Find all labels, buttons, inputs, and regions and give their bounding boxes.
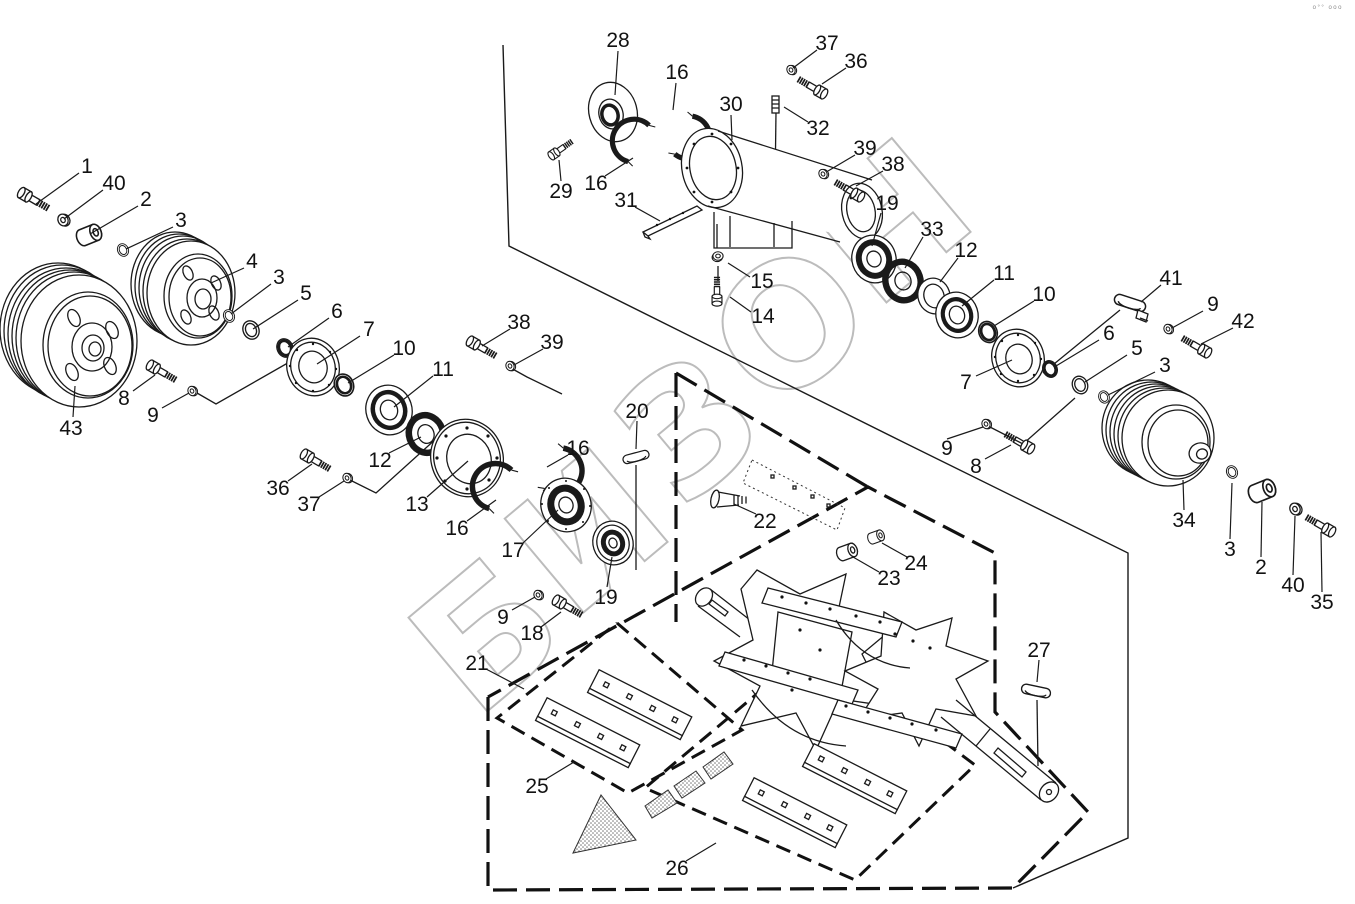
leader-line (793, 50, 817, 68)
part-label-26: 26 (665, 857, 688, 880)
leader-line (253, 300, 298, 329)
part-label-31: 31 (614, 189, 637, 212)
bar-31 (643, 206, 702, 239)
part-label-35: 35 (1310, 591, 1333, 614)
leader-line (1230, 483, 1232, 539)
pulley-43 (0, 263, 137, 407)
leader-line (784, 107, 808, 122)
key-41 (1113, 293, 1148, 322)
part-label-40: 40 (102, 172, 125, 195)
leader-line (1085, 355, 1127, 382)
part-label-22: 22 (753, 510, 776, 533)
leader-line (1293, 516, 1295, 575)
part-label-9: 9 (497, 606, 509, 629)
part-label-2: 2 (140, 188, 152, 211)
part-label-16: 16 (445, 517, 468, 540)
part-label-9: 9 (147, 404, 159, 427)
part-label-1: 1 (81, 155, 93, 178)
part-label-16: 16 (566, 437, 589, 460)
part-label-27: 27 (1027, 639, 1050, 662)
part-label-41: 41 (1159, 267, 1182, 290)
leader-line (1172, 311, 1203, 328)
leader-line (64, 190, 103, 219)
part-label-5: 5 (1131, 337, 1143, 360)
leader-line (822, 68, 846, 84)
leader-line (1056, 340, 1099, 366)
part-label-14: 14 (751, 305, 775, 328)
leader-line (231, 284, 271, 314)
ring-5-left (240, 318, 262, 342)
leader-line (1037, 660, 1039, 682)
stud-32 (772, 96, 779, 113)
screw-29 (547, 138, 575, 161)
washer-9-left (186, 384, 199, 397)
washer-40-right (1288, 501, 1304, 518)
leader-line (348, 355, 394, 383)
part-label-32: 32 (806, 117, 829, 140)
part-label-34: 34 (1172, 509, 1196, 532)
washer-37-left (341, 471, 354, 484)
part-label-11: 11 (993, 262, 1015, 285)
part-label-42: 42 (1231, 310, 1254, 333)
leader-line (635, 207, 660, 221)
leader-line (1201, 328, 1233, 344)
part-label-13: 13 (405, 493, 428, 516)
leader-line (882, 543, 907, 557)
key-27 (1021, 683, 1052, 698)
part-label-2: 2 (1255, 556, 1267, 579)
part-label-15: 15 (750, 270, 773, 293)
part-label-8: 8 (970, 455, 982, 478)
leader-line (559, 160, 561, 181)
corner-mark: о°° ооо (1313, 5, 1343, 11)
part-label-28: 28 (606, 29, 629, 52)
part-label-9: 9 (1207, 293, 1219, 316)
part-label-36: 36 (266, 477, 289, 500)
part-label-8: 8 (118, 387, 130, 410)
leader-line (1321, 532, 1322, 592)
part-label-6: 6 (331, 300, 343, 323)
part-label-37: 37 (815, 32, 838, 55)
pulley-34 (1102, 380, 1214, 486)
part-label-20: 20 (625, 400, 648, 423)
leader-line (1141, 285, 1161, 302)
leader-line (686, 843, 716, 861)
part-label-3: 3 (1224, 538, 1236, 561)
part-label-10: 10 (1032, 283, 1055, 306)
part-label-7: 7 (363, 318, 375, 341)
part-label-30: 30 (719, 93, 742, 116)
part-label-21: 21 (465, 652, 488, 675)
connector-line (197, 356, 300, 404)
part-label-36: 36 (844, 50, 867, 73)
part-label-9: 9 (941, 437, 953, 460)
part-label-33: 33 (920, 218, 943, 241)
leader-line (288, 464, 312, 481)
ring-3-a (115, 242, 130, 258)
bolt-38-left (465, 335, 498, 360)
part-label-12: 12 (954, 239, 977, 262)
part-label-37: 37 (297, 493, 320, 516)
leader-line (482, 329, 510, 346)
part-label-17: 17 (501, 539, 524, 562)
part-label-38: 38 (881, 153, 904, 176)
part-label-40: 40 (1281, 574, 1304, 597)
part-label-3: 3 (1159, 354, 1171, 377)
part-label-3: 3 (175, 209, 187, 232)
part-label-19: 19 (875, 192, 898, 215)
part-label-39: 39 (853, 137, 876, 160)
ring-3-far-right (1224, 464, 1239, 480)
leader-line (985, 445, 1011, 459)
washer-15 (712, 252, 723, 262)
leader-line (514, 349, 543, 365)
bolt-1 (16, 186, 51, 213)
leader-line (673, 83, 676, 110)
part-label-29: 29 (549, 180, 572, 203)
parts-catalog-page: { "meta": { "background": "#ffffff", "li… (0, 0, 1355, 904)
washer-9-right-top (1162, 322, 1175, 335)
leader-line (994, 301, 1034, 326)
part-label-24: 24 (904, 552, 928, 575)
leader-line (90, 206, 138, 234)
direction-arrow (573, 752, 733, 853)
knife-plate-26-a (803, 744, 907, 814)
leader-line (605, 158, 633, 176)
leader-line (36, 173, 79, 204)
part-label-25: 25 (525, 775, 548, 798)
part-label-38: 38 (507, 311, 530, 334)
part-label-12: 12 (368, 449, 391, 472)
nut-24 (866, 529, 886, 545)
bushing-2-right (1246, 477, 1278, 504)
leader-line (1183, 480, 1184, 510)
part-label-39: 39 (540, 331, 563, 354)
part-label-18: 18 (520, 622, 543, 645)
washer-9-right-mid (980, 417, 993, 430)
part-label-16: 16 (584, 172, 607, 195)
pulley-4 (131, 232, 235, 345)
leader-line (319, 481, 344, 497)
part-label-43: 43 (59, 417, 82, 440)
part-label-3: 3 (273, 266, 285, 289)
bolt-36-top (796, 75, 829, 100)
leader-line (546, 762, 574, 779)
part-label-10: 10 (392, 337, 415, 360)
part-label-4: 4 (246, 250, 258, 273)
leader-line (853, 557, 879, 572)
part-label-11: 11 (432, 358, 454, 381)
leader-line (133, 375, 155, 391)
ring-5-right (1069, 374, 1090, 397)
rotor-right-shaft (941, 700, 1063, 806)
bolt-42 (1180, 334, 1213, 359)
part-label-7: 7 (960, 371, 972, 394)
part-label-19: 19 (594, 586, 617, 609)
connector-line (988, 398, 1075, 444)
part-label-16: 16 (665, 61, 688, 84)
connector-line (509, 367, 562, 394)
part-label-5: 5 (300, 282, 312, 305)
rotor-assembly (692, 570, 1063, 806)
exploded-parts-diagram: БИЗОН (0, 0, 1355, 904)
leader-line (162, 393, 189, 408)
part-label-6: 6 (1103, 322, 1115, 345)
part-label-23: 23 (877, 567, 900, 590)
bolt-8-left (145, 359, 178, 384)
leader-line (1261, 502, 1262, 557)
bushing-2-left (74, 222, 104, 247)
